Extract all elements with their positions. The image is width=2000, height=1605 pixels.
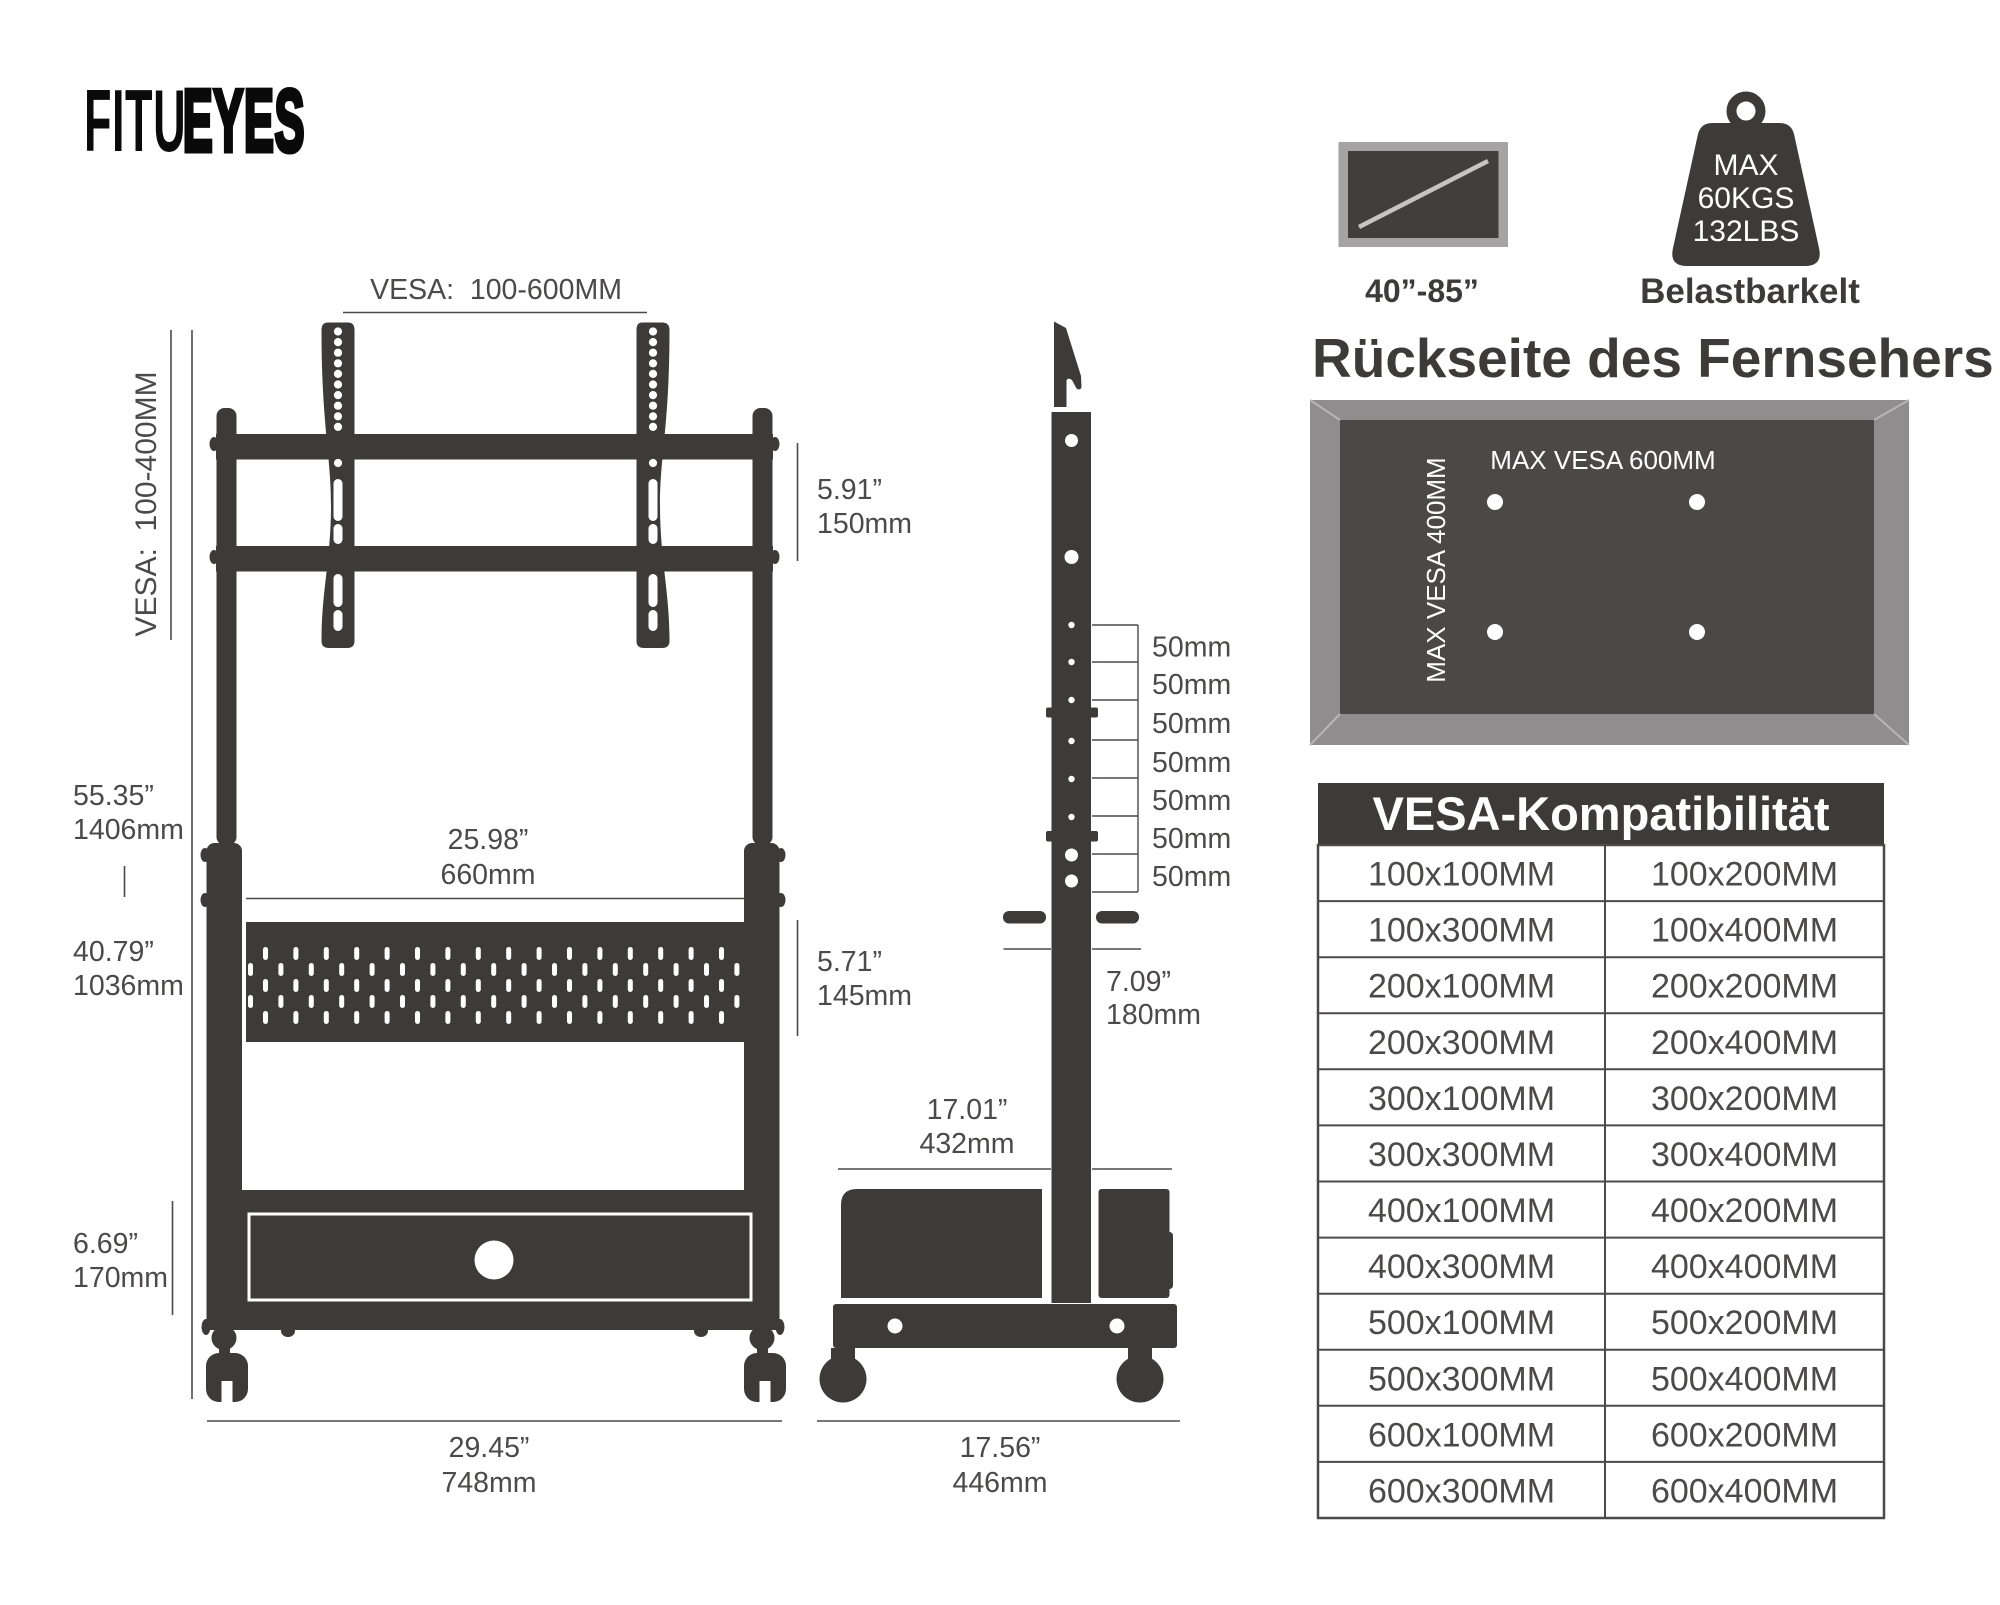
svg-text:MAX: MAX — [1713, 149, 1778, 182]
svg-text:500x300MM: 500x300MM — [1368, 1360, 1555, 1398]
svg-text:300x400MM: 300x400MM — [1651, 1136, 1838, 1174]
svg-text:200x400MM: 200x400MM — [1651, 1024, 1838, 1062]
svg-text:400x300MM: 400x300MM — [1368, 1248, 1555, 1286]
svg-text:6.69”: 6.69” — [73, 1228, 138, 1260]
svg-text:600x200MM: 600x200MM — [1651, 1416, 1838, 1454]
svg-text:145mm: 145mm — [817, 980, 912, 1012]
svg-text:100x300MM: 100x300MM — [1368, 912, 1555, 950]
svg-text:200x100MM: 200x100MM — [1368, 968, 1555, 1006]
svg-text:50mm: 50mm — [1152, 823, 1231, 855]
svg-text:600x300MM: 600x300MM — [1368, 1473, 1555, 1511]
svg-text:132LBS: 132LBS — [1693, 215, 1800, 248]
svg-text:300x200MM: 300x200MM — [1651, 1080, 1838, 1118]
svg-text:25.98”: 25.98” — [448, 824, 529, 856]
svg-text:500x100MM: 500x100MM — [1368, 1304, 1555, 1342]
svg-text:55.35”: 55.35” — [73, 780, 154, 812]
svg-text:VESA: 100-600MM: VESA: 100-600MM — [370, 274, 622, 306]
svg-text:17.01”: 17.01” — [927, 1094, 1008, 1126]
svg-text:17.56”: 17.56” — [960, 1432, 1041, 1464]
svg-text:50mm: 50mm — [1152, 861, 1231, 893]
svg-text:180mm: 180mm — [1106, 999, 1201, 1031]
svg-text:5.91”: 5.91” — [817, 474, 882, 506]
svg-text:MAX VESA 400MM: MAX VESA 400MM — [1421, 457, 1451, 682]
svg-text:100x400MM: 100x400MM — [1651, 912, 1838, 950]
svg-text:FITU: FITU — [84, 72, 186, 170]
svg-text:Rückseite des Fernsehers: Rückseite des Fernsehers — [1312, 327, 1994, 389]
svg-text:50mm: 50mm — [1152, 632, 1231, 664]
svg-text:400x200MM: 400x200MM — [1651, 1192, 1838, 1230]
svg-text:500x400MM: 500x400MM — [1651, 1360, 1838, 1398]
svg-text:50mm: 50mm — [1152, 708, 1231, 740]
svg-text:150mm: 150mm — [817, 508, 912, 540]
svg-text:VESA: 100-400MM: VESA: 100-400MM — [130, 371, 163, 636]
svg-text:300x100MM: 300x100MM — [1368, 1080, 1555, 1118]
svg-text:170mm: 170mm — [73, 1262, 168, 1294]
svg-text:40”-85”: 40”-85” — [1365, 273, 1479, 309]
svg-text:400x100MM: 400x100MM — [1368, 1192, 1555, 1230]
svg-text:5.71”: 5.71” — [817, 946, 882, 978]
svg-text:50mm: 50mm — [1152, 785, 1231, 817]
svg-text:50mm: 50mm — [1152, 669, 1231, 701]
svg-text:VESA-Kompatibilität: VESA-Kompatibilität — [1373, 787, 1830, 840]
svg-text:200x300MM: 200x300MM — [1368, 1024, 1555, 1062]
svg-text:1406mm: 1406mm — [73, 814, 184, 846]
svg-text:EYES: EYES — [183, 72, 305, 170]
svg-text:7.09”: 7.09” — [1106, 966, 1171, 998]
svg-text:660mm: 660mm — [440, 859, 535, 891]
svg-text:29.45”: 29.45” — [449, 1432, 530, 1464]
svg-text:600x400MM: 600x400MM — [1651, 1473, 1838, 1511]
svg-text:748mm: 748mm — [441, 1467, 536, 1499]
svg-text:400x400MM: 400x400MM — [1651, 1248, 1838, 1286]
svg-text:100x100MM: 100x100MM — [1368, 856, 1555, 894]
svg-text:MAX VESA 600MM: MAX VESA 600MM — [1490, 445, 1715, 475]
svg-text:200x200MM: 200x200MM — [1651, 968, 1838, 1006]
svg-text:60KGS: 60KGS — [1698, 182, 1795, 215]
svg-text:Belastbarkelt: Belastbarkelt — [1640, 272, 1860, 311]
svg-text:100x200MM: 100x200MM — [1651, 856, 1838, 894]
svg-text:600x100MM: 600x100MM — [1368, 1416, 1555, 1454]
svg-text:432mm: 432mm — [919, 1128, 1014, 1160]
svg-text:500x200MM: 500x200MM — [1651, 1304, 1838, 1342]
svg-text:446mm: 446mm — [952, 1467, 1047, 1499]
svg-text:40.79”: 40.79” — [73, 936, 154, 968]
svg-text:300x300MM: 300x300MM — [1368, 1136, 1555, 1174]
svg-text:1036mm: 1036mm — [73, 970, 184, 1002]
svg-text:50mm: 50mm — [1152, 747, 1231, 779]
